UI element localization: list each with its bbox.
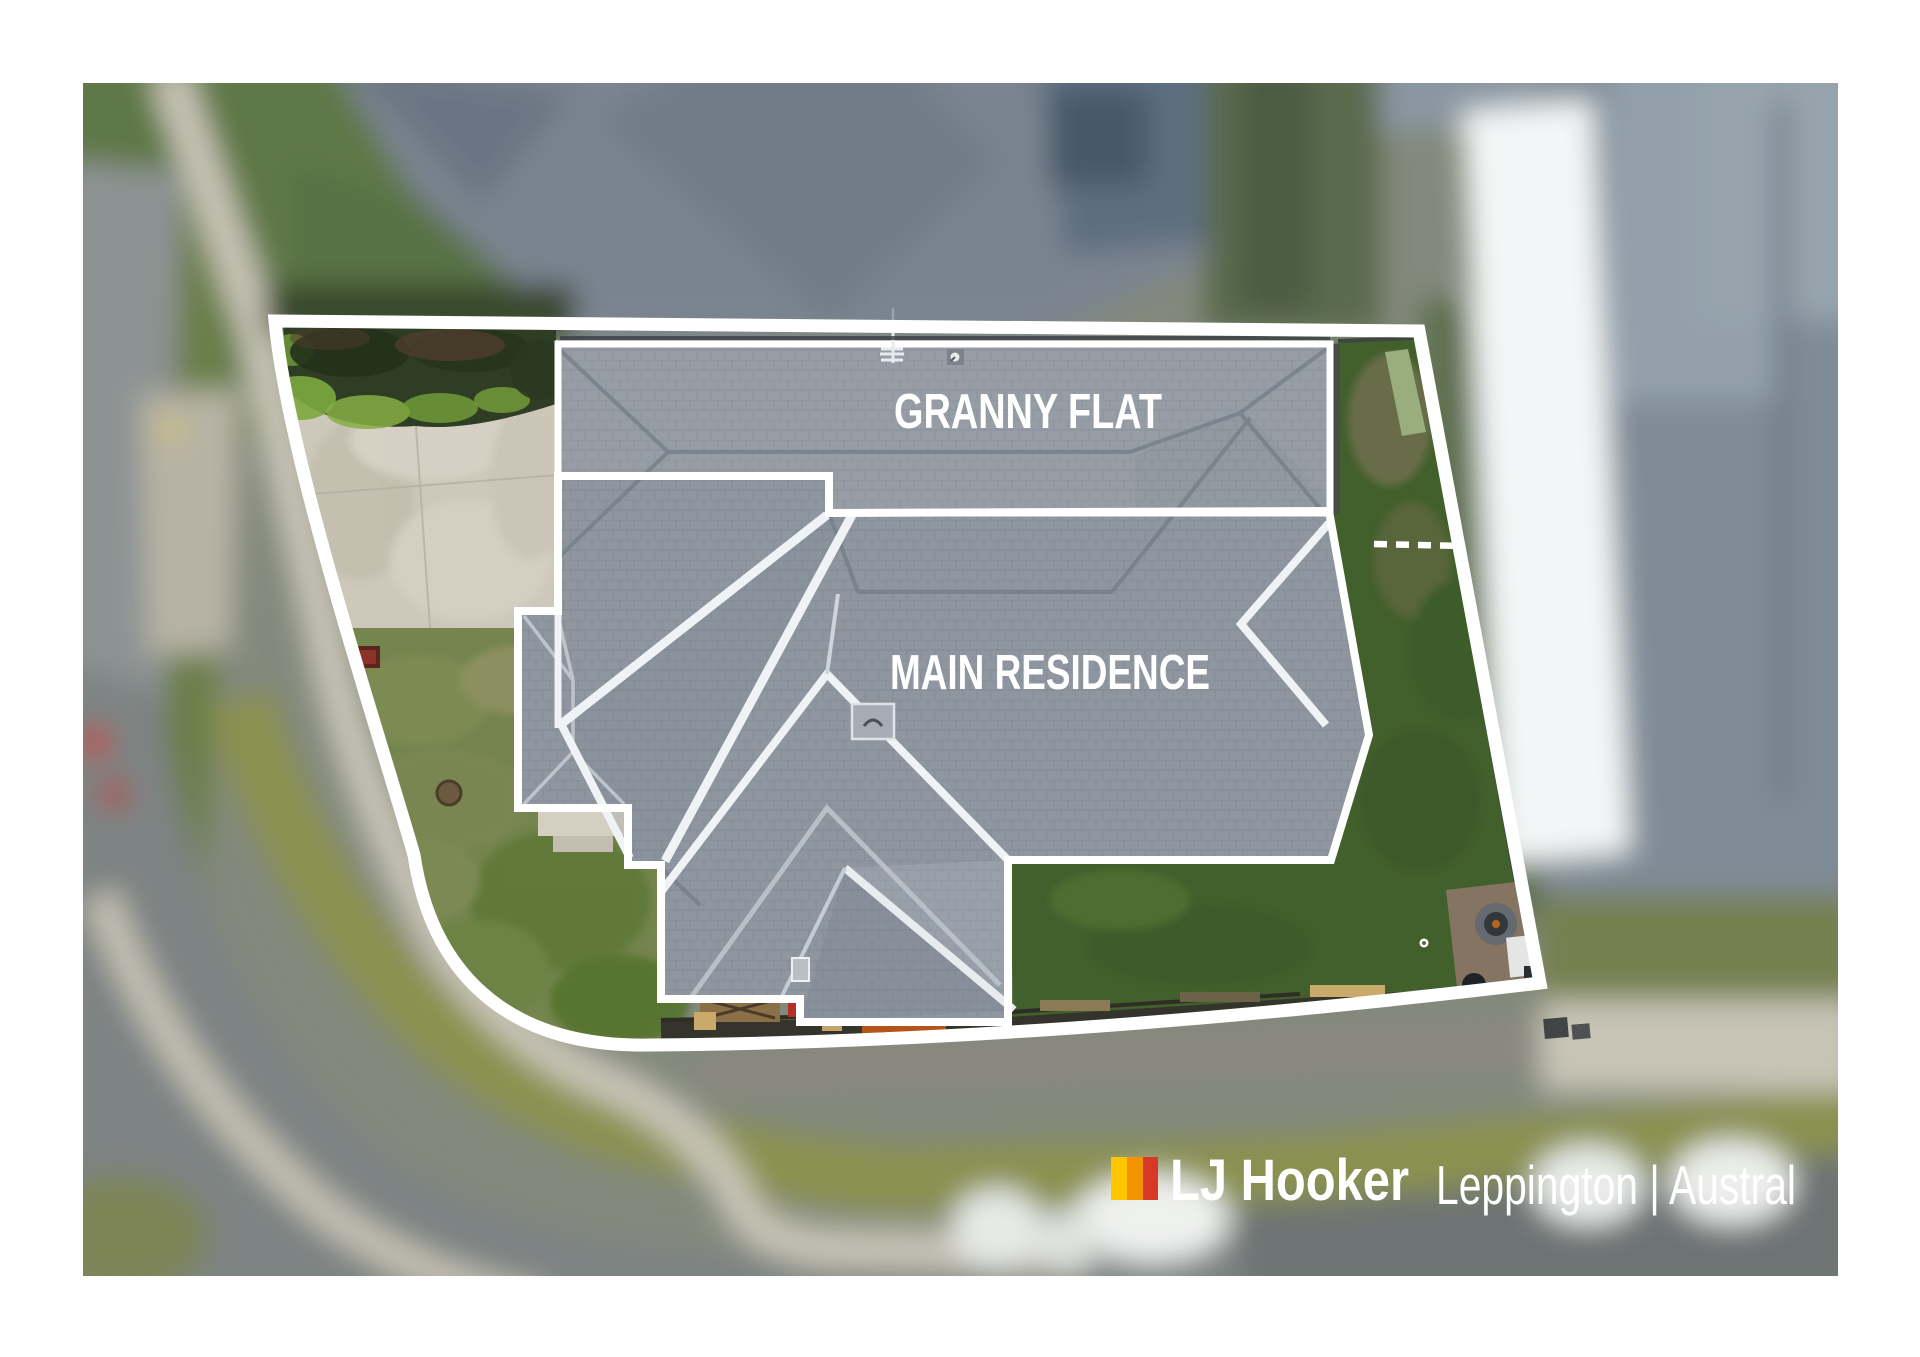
svg-text:MAIN RESIDENCE: MAIN RESIDENCE bbox=[890, 646, 1210, 700]
svg-text:GRANNY FLAT: GRANNY FLAT bbox=[894, 385, 1162, 439]
svg-text:LJ Hooker: LJ Hooker bbox=[1170, 1148, 1409, 1213]
svg-text:Leppington | Austral: Leppington | Austral bbox=[1436, 1154, 1796, 1216]
